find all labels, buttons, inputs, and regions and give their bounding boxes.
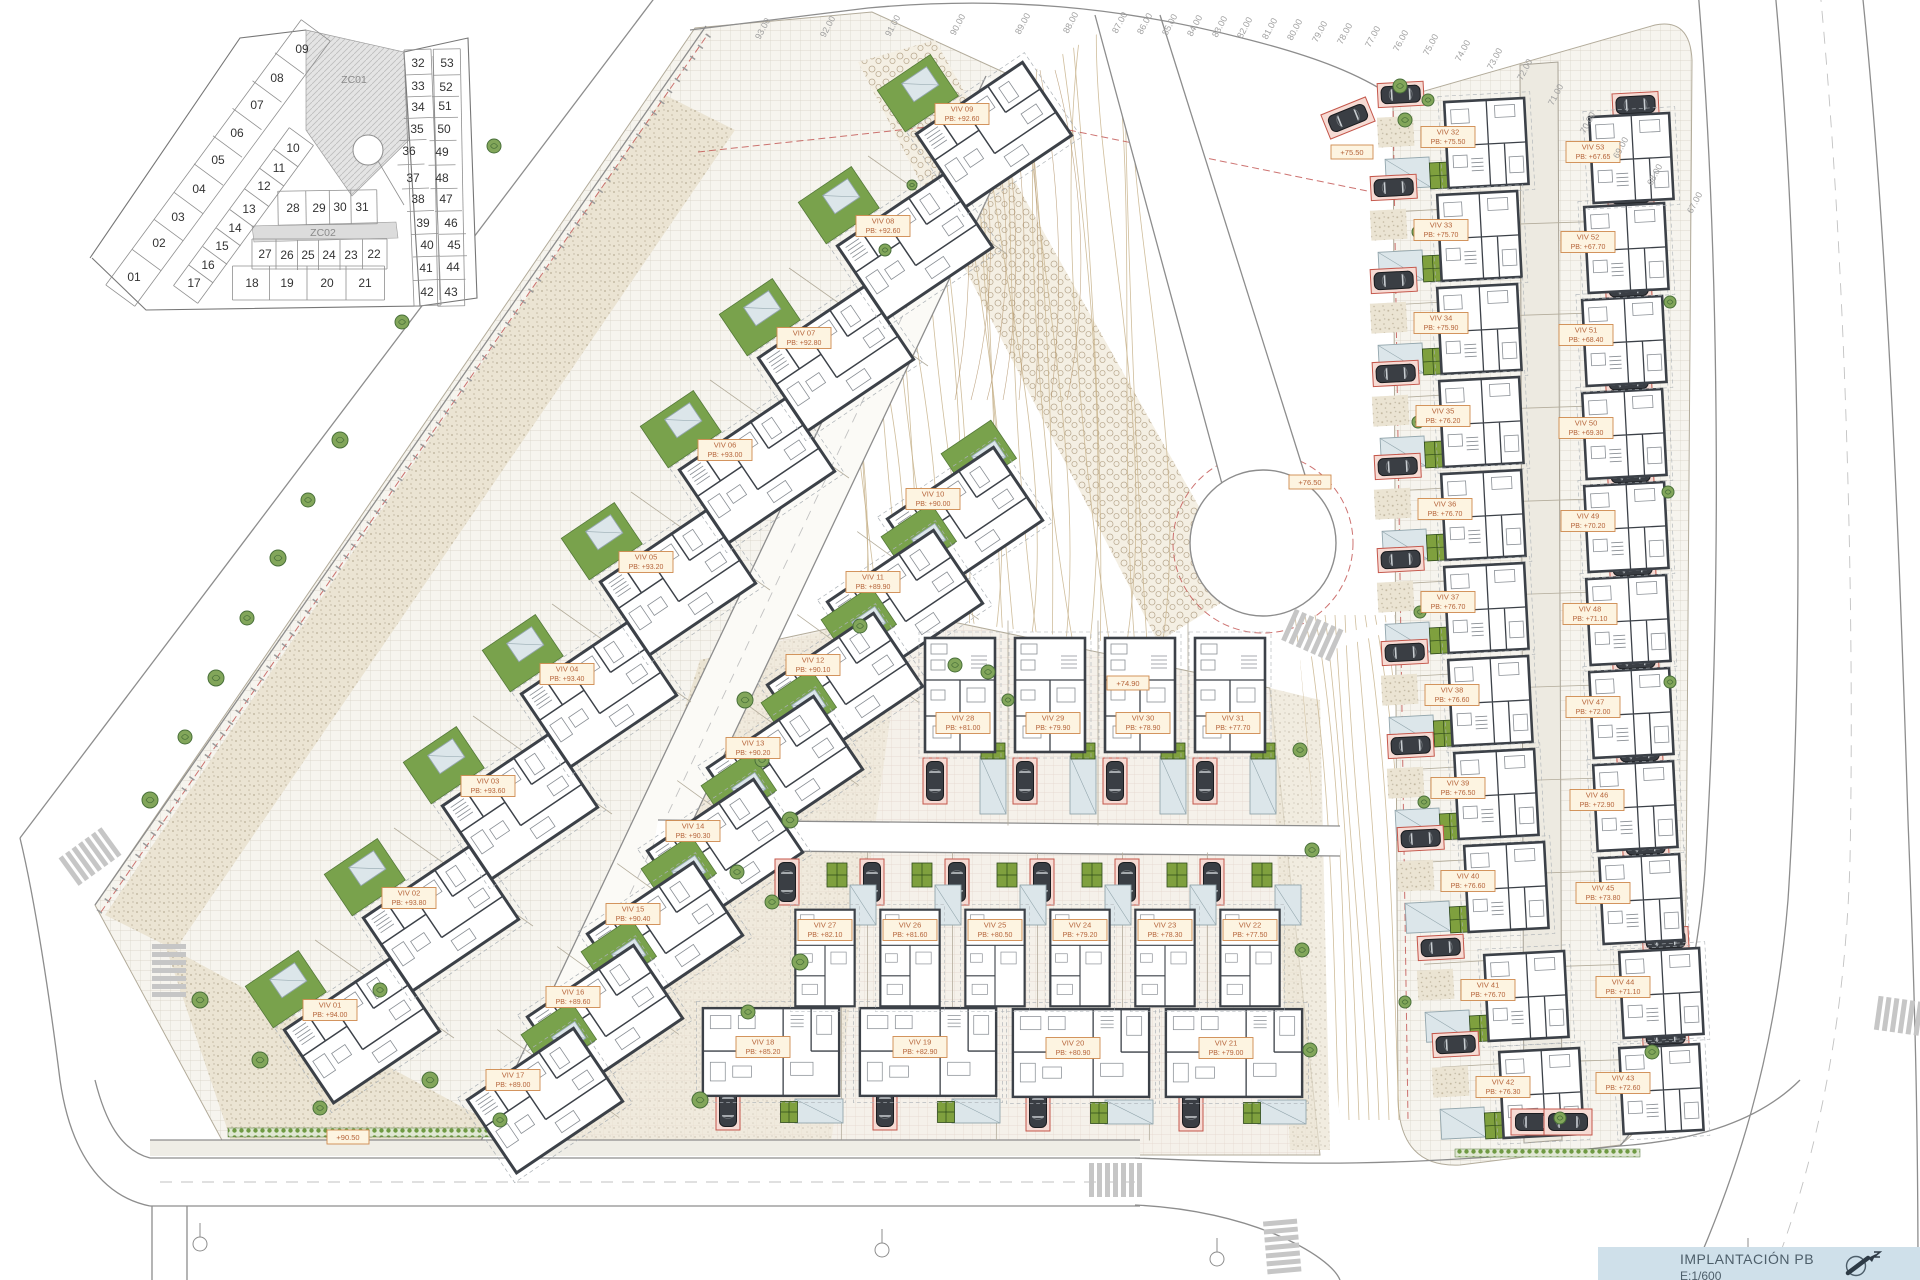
villa-label: VIV 11PB: +89.90 xyxy=(846,572,900,593)
villa-label: VIV 13PB: +90.20 xyxy=(726,738,780,759)
tree xyxy=(395,315,409,329)
car xyxy=(1374,271,1414,290)
car xyxy=(779,863,796,902)
svg-text:VIV 11: VIV 11 xyxy=(862,573,884,582)
svg-text:PB: +90.30: PB: +90.30 xyxy=(676,833,711,840)
svg-text:VIV 37: VIV 37 xyxy=(1437,593,1460,602)
tree xyxy=(1393,79,1407,93)
tree xyxy=(853,619,867,633)
crosswalk xyxy=(1874,996,1920,1037)
tree xyxy=(192,992,208,1008)
svg-text:VIV 51: VIV 51 xyxy=(1575,326,1598,335)
villa-label: VIV 24PB: +79.20 xyxy=(1053,920,1107,941)
house-floorplan xyxy=(1009,632,1091,758)
keyplan-plot-number: 50 xyxy=(437,122,451,136)
svg-text:VIV 09: VIV 09 xyxy=(951,105,974,114)
svg-text:PB: +69.30: PB: +69.30 xyxy=(1569,430,1604,437)
svg-text:PB: +72.60: PB: +72.60 xyxy=(1606,1085,1641,1092)
svg-text:VIV 19: VIV 19 xyxy=(909,1038,932,1047)
svg-text:VIV 14: VIV 14 xyxy=(682,822,705,831)
drawing-scale: E:1/600 xyxy=(1680,1269,1814,1280)
svg-text:PB: +76.30: PB: +76.30 xyxy=(1486,1089,1521,1096)
svg-text:PB: +90.20: PB: +90.20 xyxy=(736,750,771,757)
svg-text:VIV 23: VIV 23 xyxy=(1154,921,1177,930)
keyplan-plot-number: 21 xyxy=(358,276,372,290)
crosswalk xyxy=(1263,1219,1301,1275)
elevation-label: 82.00 xyxy=(1235,15,1254,40)
svg-text:VIV 02: VIV 02 xyxy=(398,889,421,898)
svg-text:VIV 27: VIV 27 xyxy=(814,921,837,930)
villa-label: VIV 26PB: +81.60 xyxy=(883,920,937,941)
tree xyxy=(1418,796,1430,808)
villa-label: VIV 12PB: +90.10 xyxy=(786,655,840,676)
elevation-label: 90.00 xyxy=(948,12,967,37)
keyplan-plot-number: 05 xyxy=(211,153,225,167)
svg-text:VIV 03: VIV 03 xyxy=(477,777,500,786)
house-floorplan xyxy=(919,632,1001,758)
villa-label: VIV 48PB: +71.10 xyxy=(1563,604,1617,625)
villa-label: VIV 01PB: +94.00 xyxy=(303,1000,357,1021)
svg-text:PB: +68.40: PB: +68.40 xyxy=(1569,337,1604,344)
svg-text:VIV 05: VIV 05 xyxy=(635,553,658,562)
svg-text:PB: +89.00: PB: +89.00 xyxy=(496,1082,531,1089)
extra-cars xyxy=(1321,97,1375,139)
svg-text:+90.50: +90.50 xyxy=(336,1133,359,1142)
villa-label: VIV 30PB: +78.90 xyxy=(1116,713,1170,734)
house-floorplan xyxy=(1099,632,1181,758)
villa-label: VIV 45PB: +73.80 xyxy=(1576,883,1630,904)
svg-text:VIV 43: VIV 43 xyxy=(1612,1074,1635,1083)
keyplan-plot-number: 42 xyxy=(420,285,434,299)
keyplan-plot-number: 46 xyxy=(444,216,458,230)
keyplan-plot-number: 14 xyxy=(228,221,242,235)
keyplan-plot-number: 11 xyxy=(273,161,286,175)
keyplan-zone-label: ZC02 xyxy=(310,227,336,239)
tree xyxy=(948,658,962,672)
key-plan: 0102030405060708091011121314151617181920… xyxy=(90,20,477,310)
svg-text:PB: +93.40: PB: +93.40 xyxy=(550,676,585,683)
svg-text:+76.50: +76.50 xyxy=(1298,478,1321,487)
svg-text:PB: +94.00: PB: +94.00 xyxy=(313,1012,348,1019)
keyplan-plot-number: 18 xyxy=(245,276,259,290)
villa-label: VIV 50PB: +69.30 xyxy=(1559,418,1613,439)
svg-text:VIV 48: VIV 48 xyxy=(1579,605,1602,614)
svg-text:VIV 49: VIV 49 xyxy=(1577,512,1600,521)
keyplan-plot-number: 02 xyxy=(152,236,166,250)
tree xyxy=(240,611,254,625)
svg-text:PB: +92.60: PB: +92.60 xyxy=(945,116,980,123)
svg-text:PB: +90.40: PB: +90.40 xyxy=(616,916,651,923)
car xyxy=(1378,457,1418,476)
site-plan-svg: VIV 01PB: +94.00VIV 02PB: +93.80VIV 03PB… xyxy=(0,0,1920,1280)
svg-text:VIV 15: VIV 15 xyxy=(622,905,645,914)
villa-label: VIV 49PB: +70.20 xyxy=(1561,511,1615,532)
svg-text:VIV 25: VIV 25 xyxy=(984,921,1007,930)
keyplan-plot-number: 43 xyxy=(444,285,458,299)
svg-text:PB: +70.20: PB: +70.20 xyxy=(1571,523,1606,530)
extra-cars xyxy=(1544,1109,1592,1135)
keyplan-plot-number: 45 xyxy=(447,238,461,252)
keyplan-plot-number: 19 xyxy=(280,276,294,290)
tree xyxy=(1645,1045,1659,1059)
keyplan-plot-number: 22 xyxy=(367,247,381,261)
villa-label: VIV 34PB: +75.90 xyxy=(1414,313,1468,334)
svg-text:PB: +92.80: PB: +92.80 xyxy=(787,340,822,347)
svg-text:VIV 34: VIV 34 xyxy=(1430,314,1453,323)
spot-level: +90.50 xyxy=(327,1130,369,1144)
svg-text:VIV 10: VIV 10 xyxy=(922,490,945,499)
tree xyxy=(208,670,224,686)
tree xyxy=(487,139,501,153)
keyplan-plot-number: 15 xyxy=(215,239,229,253)
villa-label: VIV 10PB: +90.00 xyxy=(906,489,960,510)
crosswalk xyxy=(59,827,122,886)
keyplan-plot-number: 01 xyxy=(127,270,141,284)
tree xyxy=(373,983,387,997)
villa-label: VIV 38PB: +76.60 xyxy=(1425,685,1479,706)
svg-text:VIV 06: VIV 06 xyxy=(714,441,737,450)
spot-level: +76.50 xyxy=(1289,475,1331,489)
villa-label: VIV 21PB: +79.00 xyxy=(1199,1038,1253,1059)
drawing-title: IMPLANTACIÓN PB xyxy=(1680,1251,1814,1267)
svg-text:PB: +75.90: PB: +75.90 xyxy=(1424,325,1459,332)
svg-text:PB: +76.60: PB: +76.60 xyxy=(1435,697,1470,704)
villa-label: VIV 33PB: +75.70 xyxy=(1414,220,1468,241)
svg-text:PB: +76.50: PB: +76.50 xyxy=(1441,790,1476,797)
svg-text:VIV 42: VIV 42 xyxy=(1492,1078,1515,1087)
svg-text:PB: +76.70: PB: +76.70 xyxy=(1471,992,1506,999)
keyplan-plot-number: 32 xyxy=(411,56,425,70)
svg-text:VIV 16: VIV 16 xyxy=(562,988,585,997)
svg-text:PB: +78.30: PB: +78.30 xyxy=(1148,932,1183,939)
elevation-label: 79.00 xyxy=(1310,19,1329,44)
keyplan-plot-number: 17 xyxy=(187,276,201,290)
svg-text:PB: +78.90: PB: +78.90 xyxy=(1126,725,1161,732)
keyplan-plot-number: 06 xyxy=(230,126,244,140)
svg-text:PB: +89.90: PB: +89.90 xyxy=(856,584,891,591)
tree xyxy=(252,1052,268,1068)
tree xyxy=(741,1005,755,1019)
keyplan-plot-number: 37 xyxy=(406,171,420,185)
svg-text:VIV 12: VIV 12 xyxy=(802,656,825,665)
villa-label: VIV 16PB: +89.60 xyxy=(546,987,600,1008)
hedges xyxy=(1455,1149,1640,1157)
villa-label: VIV 17PB: +89.00 xyxy=(486,1070,540,1091)
tree xyxy=(493,1113,507,1127)
tree xyxy=(692,1092,708,1108)
villa-label: VIV 14PB: +90.30 xyxy=(666,821,720,842)
tree xyxy=(142,792,158,808)
svg-text:VIV 22: VIV 22 xyxy=(1239,921,1262,930)
svg-text:PB: +93.20: PB: +93.20 xyxy=(629,564,664,571)
tree xyxy=(1305,843,1319,857)
svg-text:PB: +80.90: PB: +80.90 xyxy=(1056,1050,1091,1057)
tree xyxy=(313,1101,327,1115)
villa-label: VIV 07PB: +92.80 xyxy=(777,328,831,349)
keyplan-zone-label: ZC01 xyxy=(341,74,367,86)
villa-label: VIV 44PB: +71.10 xyxy=(1596,977,1650,998)
villa-label: VIV 02PB: +93.80 xyxy=(382,888,436,909)
keyplan-plot-number: 10 xyxy=(286,141,300,155)
hedge-strip xyxy=(1455,1149,1640,1157)
keyplan-plot-number: 49 xyxy=(435,145,449,159)
car xyxy=(1616,95,1656,114)
svg-text:+74.90: +74.90 xyxy=(1116,679,1139,688)
villa-label: VIV 42PB: +76.30 xyxy=(1476,1077,1530,1098)
tree xyxy=(332,432,348,448)
villa-label: VIV 27PB: +82.10 xyxy=(798,920,852,941)
svg-text:PB: +89.60: PB: +89.60 xyxy=(556,999,591,1006)
title-block: IMPLANTACIÓN PB E:1/600 xyxy=(1598,1247,1920,1280)
svg-text:PB: +67.65: PB: +67.65 xyxy=(1576,154,1611,161)
villa-label: VIV 23PB: +78.30 xyxy=(1138,920,1192,941)
svg-text:VIV 04: VIV 04 xyxy=(556,665,579,674)
keyplan-plot-number: 04 xyxy=(192,182,206,196)
keyplan-plot-number: 27 xyxy=(258,247,272,261)
svg-text:VIV 52: VIV 52 xyxy=(1577,233,1600,242)
svg-text:PB: +75.70: PB: +75.70 xyxy=(1424,232,1459,239)
keyplan-plot-number: 38 xyxy=(411,192,425,206)
keyplan-plot-number: 12 xyxy=(257,179,271,193)
villa-label: VIV 09PB: +92.60 xyxy=(935,104,989,125)
villa-label: VIV 25PB: +80.50 xyxy=(968,920,1022,941)
svg-text:VIV 41: VIV 41 xyxy=(1477,981,1500,990)
elevation-label: 81.00 xyxy=(1260,16,1279,41)
svg-text:PB: +79.20: PB: +79.20 xyxy=(1063,932,1098,939)
car xyxy=(1017,762,1034,801)
section-marker xyxy=(875,1229,889,1257)
car xyxy=(1391,736,1431,755)
svg-text:VIV 17: VIV 17 xyxy=(502,1071,525,1080)
svg-text:PB: +93.60: PB: +93.60 xyxy=(471,788,506,795)
svg-text:VIV 35: VIV 35 xyxy=(1432,407,1455,416)
car xyxy=(1197,762,1214,801)
north-arrow-icon xyxy=(1840,1249,1886,1279)
keyplan-plot-number: 30 xyxy=(333,200,347,214)
tree xyxy=(422,1072,438,1088)
elevation-label: 88.00 xyxy=(1061,10,1080,35)
tree xyxy=(737,692,753,708)
keyplan-plot-number: 33 xyxy=(411,79,425,93)
tree xyxy=(1293,743,1307,757)
svg-text:VIV 21: VIV 21 xyxy=(1215,1039,1238,1048)
section-marker xyxy=(193,1223,207,1251)
svg-text:+75.50: +75.50 xyxy=(1340,148,1363,157)
tree xyxy=(1664,676,1676,688)
car xyxy=(1374,178,1414,197)
svg-text:PB: +93.00: PB: +93.00 xyxy=(708,452,743,459)
svg-text:VIV 29: VIV 29 xyxy=(1042,714,1065,723)
villa-label: VIV 39PB: +76.50 xyxy=(1431,778,1485,799)
elevation-label: 83.00 xyxy=(1210,14,1229,39)
svg-text:PB: +81.60: PB: +81.60 xyxy=(893,932,928,939)
svg-text:VIV 47: VIV 47 xyxy=(1582,698,1605,707)
tree xyxy=(1295,943,1309,957)
svg-text:PB: +90.00: PB: +90.00 xyxy=(916,501,951,508)
car xyxy=(927,762,944,801)
keyplan-plot-number: 52 xyxy=(439,80,453,94)
keyplan-plot-number: 39 xyxy=(416,216,430,230)
tree xyxy=(782,812,798,828)
car xyxy=(1107,762,1124,801)
elevation-label: 80.00 xyxy=(1285,17,1304,42)
svg-text:PB: +93.80: PB: +93.80 xyxy=(392,900,427,907)
svg-text:PB: +75.50: PB: +75.50 xyxy=(1431,139,1466,146)
svg-text:PB: +76.60: PB: +76.60 xyxy=(1451,883,1486,890)
villa-label: VIV 18PB: +85.20 xyxy=(736,1037,790,1058)
keyplan-plot-number: 31 xyxy=(355,200,369,214)
elevation-label: 89.00 xyxy=(1013,11,1032,36)
keyplan-plot-number: 51 xyxy=(438,99,452,113)
house-floorplan xyxy=(1189,632,1271,758)
keyplan-plot-number: 28 xyxy=(286,201,300,215)
villa-label: VIV 43PB: +72.60 xyxy=(1596,1073,1650,1094)
svg-text:VIV 46: VIV 46 xyxy=(1586,791,1609,800)
svg-text:PB: +76.20: PB: +76.20 xyxy=(1426,418,1461,425)
villa-label: VIV 36PB: +76.70 xyxy=(1418,499,1472,520)
svg-text:PB: +76.70: PB: +76.70 xyxy=(1431,604,1466,611)
tree xyxy=(792,954,808,970)
tree xyxy=(1554,1112,1566,1124)
tree xyxy=(301,493,315,507)
tree xyxy=(270,550,286,566)
svg-text:VIV 28: VIV 28 xyxy=(952,714,975,723)
tree xyxy=(1399,996,1411,1008)
car xyxy=(1376,364,1416,383)
svg-text:PB: +85.20: PB: +85.20 xyxy=(746,1049,781,1056)
elevation-label: 73.00 xyxy=(1485,46,1504,71)
elevation-label: 76.00 xyxy=(1391,28,1410,53)
svg-text:VIV 39: VIV 39 xyxy=(1447,779,1470,788)
svg-text:VIV 40: VIV 40 xyxy=(1457,872,1480,881)
car xyxy=(1385,643,1425,662)
svg-text:PB: +80.50: PB: +80.50 xyxy=(978,932,1013,939)
svg-text:PB: +73.80: PB: +73.80 xyxy=(1586,895,1621,902)
section-marker xyxy=(1210,1238,1224,1266)
villa-label: VIV 46PB: +72.90 xyxy=(1570,790,1624,811)
svg-text:PB: +81.00: PB: +81.00 xyxy=(946,725,981,732)
keyplan-plot-number: 44 xyxy=(446,260,460,274)
elevation-label: 77.00 xyxy=(1363,24,1382,49)
svg-text:PB: +72.00: PB: +72.00 xyxy=(1576,709,1611,716)
title-block-text: IMPLANTACIÓN PB E:1/600 xyxy=(1680,1251,1814,1280)
svg-text:PB: +71.10: PB: +71.10 xyxy=(1606,989,1641,996)
keyplan-plot-number: 07 xyxy=(250,98,264,112)
spot-level: +74.90 xyxy=(1107,676,1149,690)
keyplan-plot-number: 20 xyxy=(320,276,334,290)
tree xyxy=(1664,296,1676,308)
elevation-label: 75.00 xyxy=(1421,32,1440,57)
svg-text:PB: +79.00: PB: +79.00 xyxy=(1209,1050,1244,1057)
car xyxy=(1381,550,1421,569)
svg-text:VIV 44: VIV 44 xyxy=(1612,978,1635,987)
keyplan-plot-number: 40 xyxy=(420,238,434,252)
tree xyxy=(879,244,891,256)
svg-text:PB: +82.90: PB: +82.90 xyxy=(903,1049,938,1056)
svg-text:PB: +77.70: PB: +77.70 xyxy=(1216,725,1251,732)
keyplan-plot-number: 13 xyxy=(242,202,256,216)
villa-label: VIV 15PB: +90.40 xyxy=(606,904,660,925)
svg-text:PB: +77.50: PB: +77.50 xyxy=(1233,932,1268,939)
svg-text:PB: +67.70: PB: +67.70 xyxy=(1571,244,1606,251)
villa-label: VIV 32PB: +75.50 xyxy=(1421,127,1475,148)
svg-text:VIV 33: VIV 33 xyxy=(1430,221,1453,230)
svg-text:VIV 24: VIV 24 xyxy=(1069,921,1092,930)
elevation-label: 74.00 xyxy=(1453,38,1472,63)
tree xyxy=(765,895,779,909)
villa-label: VIV 29PB: +79.90 xyxy=(1026,713,1080,734)
keyplan-plot-number: 25 xyxy=(301,248,315,262)
svg-text:VIV 38: VIV 38 xyxy=(1441,686,1464,695)
svg-text:VIV 18: VIV 18 xyxy=(752,1038,775,1047)
keyplan-plot-number: 24 xyxy=(322,248,336,262)
keyplan-plot-number: 26 xyxy=(280,248,294,262)
car xyxy=(1436,1035,1476,1054)
keyplan-plot-number: 35 xyxy=(410,122,424,136)
tree xyxy=(1002,694,1014,706)
svg-text:VIV 32: VIV 32 xyxy=(1437,128,1460,137)
svg-text:VIV 07: VIV 07 xyxy=(793,329,816,338)
keyplan-plot-number: 08 xyxy=(270,71,284,85)
svg-text:VIV 30: VIV 30 xyxy=(1132,714,1155,723)
keyplan-plot-number: 53 xyxy=(440,56,454,70)
tree xyxy=(730,865,744,879)
car xyxy=(1401,829,1441,848)
keyplan-plot-number: 29 xyxy=(312,201,326,215)
svg-text:VIV 31: VIV 31 xyxy=(1222,714,1245,723)
tree xyxy=(981,665,995,679)
tree xyxy=(1398,113,1412,127)
villa-label: VIV 40PB: +76.60 xyxy=(1441,871,1495,892)
generated-plan-layers: VIV 01PB: +94.00VIV 02PB: +93.80VIV 03PB… xyxy=(20,0,1920,1280)
tree xyxy=(1303,1043,1317,1057)
svg-text:VIV 26: VIV 26 xyxy=(899,921,922,930)
villa-label: VIV 47PB: +72.00 xyxy=(1566,697,1620,718)
villa-label: VIV 31PB: +77.70 xyxy=(1206,713,1260,734)
villa-label: VIV 22PB: +77.50 xyxy=(1223,920,1277,941)
drawing-canvas: { "title_block": { "title": "IMPLANTACIÓ… xyxy=(0,0,1920,1280)
keyplan-plot-number: 09 xyxy=(295,42,309,56)
svg-text:PB: +92.60: PB: +92.60 xyxy=(866,228,901,235)
car xyxy=(1421,938,1461,957)
svg-text:PB: +72.90: PB: +72.90 xyxy=(1580,802,1615,809)
keyplan-plot-number: 41 xyxy=(419,261,433,275)
svg-text:PB: +82.10: PB: +82.10 xyxy=(808,932,843,939)
villa-label: VIV 08PB: +92.60 xyxy=(856,216,910,237)
tree xyxy=(178,730,192,744)
keyplan-plot-number: 23 xyxy=(344,248,358,262)
svg-text:VIV 08: VIV 08 xyxy=(872,217,895,226)
villa-label: VIV 35PB: +76.20 xyxy=(1416,406,1470,427)
car xyxy=(1321,97,1375,139)
keyplan-plot-number: 47 xyxy=(439,192,453,206)
svg-text:PB: +90.10: PB: +90.10 xyxy=(796,667,831,674)
keyplan-plot-number: 16 xyxy=(201,258,215,272)
svg-text:VIV 01: VIV 01 xyxy=(319,1001,342,1010)
villa-label: VIV 51PB: +68.40 xyxy=(1559,325,1613,346)
svg-text:PB: +76.70: PB: +76.70 xyxy=(1428,511,1463,518)
car xyxy=(1544,1109,1592,1135)
crosswalk xyxy=(1281,609,1343,662)
keyplan-plot-number: 36 xyxy=(402,144,416,158)
villa-label: VIV 06PB: +93.00 xyxy=(698,440,752,461)
svg-text:VIV 36: VIV 36 xyxy=(1434,500,1457,509)
tree xyxy=(907,180,917,190)
svg-text:VIV 45: VIV 45 xyxy=(1592,884,1615,893)
keyplan-plot-number: 03 xyxy=(171,210,185,224)
villa-label: VIV 03PB: +93.60 xyxy=(461,776,515,797)
tree xyxy=(1662,486,1674,498)
